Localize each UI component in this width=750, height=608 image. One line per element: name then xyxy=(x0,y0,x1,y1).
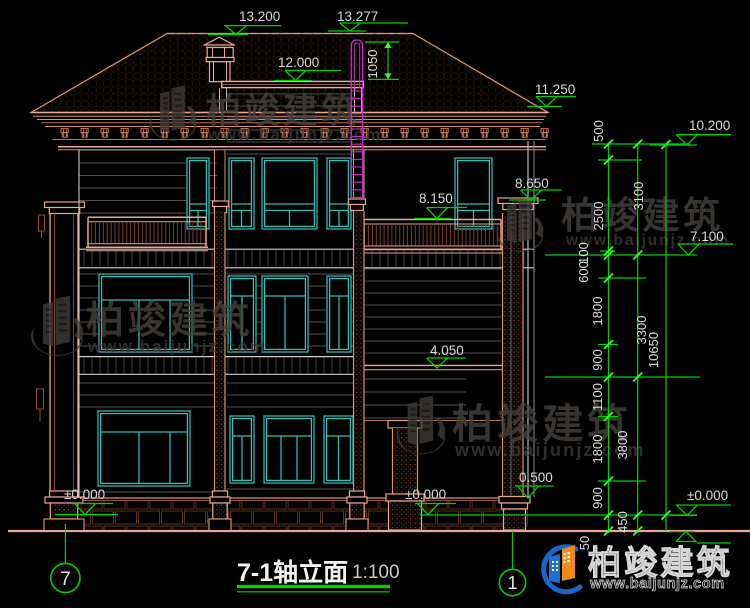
svg-text:±0.000: ±0.000 xyxy=(64,487,105,502)
svg-text:1100: 1100 xyxy=(590,383,605,411)
svg-text:1800: 1800 xyxy=(590,435,605,464)
svg-text:0.500: 0.500 xyxy=(519,470,553,485)
svg-text:10650: 10650 xyxy=(646,332,661,368)
svg-text:450: 450 xyxy=(615,511,630,533)
svg-text:8.650: 8.650 xyxy=(515,176,549,191)
svg-text:500: 500 xyxy=(591,120,606,142)
svg-text:7-1轴立面: 7-1轴立面 xyxy=(237,558,348,587)
svg-text:10.200: 10.200 xyxy=(689,118,730,133)
svg-text:1:100: 1:100 xyxy=(352,562,400,583)
svg-text:12.000: 12.000 xyxy=(278,55,319,70)
svg-text:4.050: 4.050 xyxy=(430,343,464,358)
svg-text:3800: 3800 xyxy=(615,431,630,460)
svg-text:11.250: 11.250 xyxy=(535,82,575,97)
svg-text:13.277: 13.277 xyxy=(337,9,378,24)
svg-text:2500: 2500 xyxy=(591,202,606,231)
svg-text:7.100: 7.100 xyxy=(690,229,724,244)
svg-text:900: 900 xyxy=(590,487,605,509)
svg-text:1050: 1050 xyxy=(365,50,380,79)
svg-text:www.baijunjz.com: www.baijunjz.com xyxy=(589,576,725,592)
svg-text:±0.000: ±0.000 xyxy=(687,488,728,503)
svg-text:900: 900 xyxy=(590,349,605,371)
svg-text:柏竣建筑: 柏竣建筑 xyxy=(86,300,253,342)
svg-text:100: 100 xyxy=(576,242,591,264)
svg-text:3100: 3100 xyxy=(631,182,646,211)
svg-text:柏竣建筑: 柏竣建筑 xyxy=(206,91,360,131)
svg-text:13.200: 13.200 xyxy=(239,9,280,24)
svg-text:www.baijunjz.com: www.baijunjz.com xyxy=(87,337,267,356)
svg-text:1: 1 xyxy=(507,573,517,593)
svg-text:7: 7 xyxy=(60,569,71,590)
svg-text:1800: 1800 xyxy=(590,297,605,326)
svg-text:600: 600 xyxy=(576,261,591,283)
svg-text:8.150: 8.150 xyxy=(419,191,453,206)
svg-text:±0.000: ±0.000 xyxy=(405,487,446,502)
